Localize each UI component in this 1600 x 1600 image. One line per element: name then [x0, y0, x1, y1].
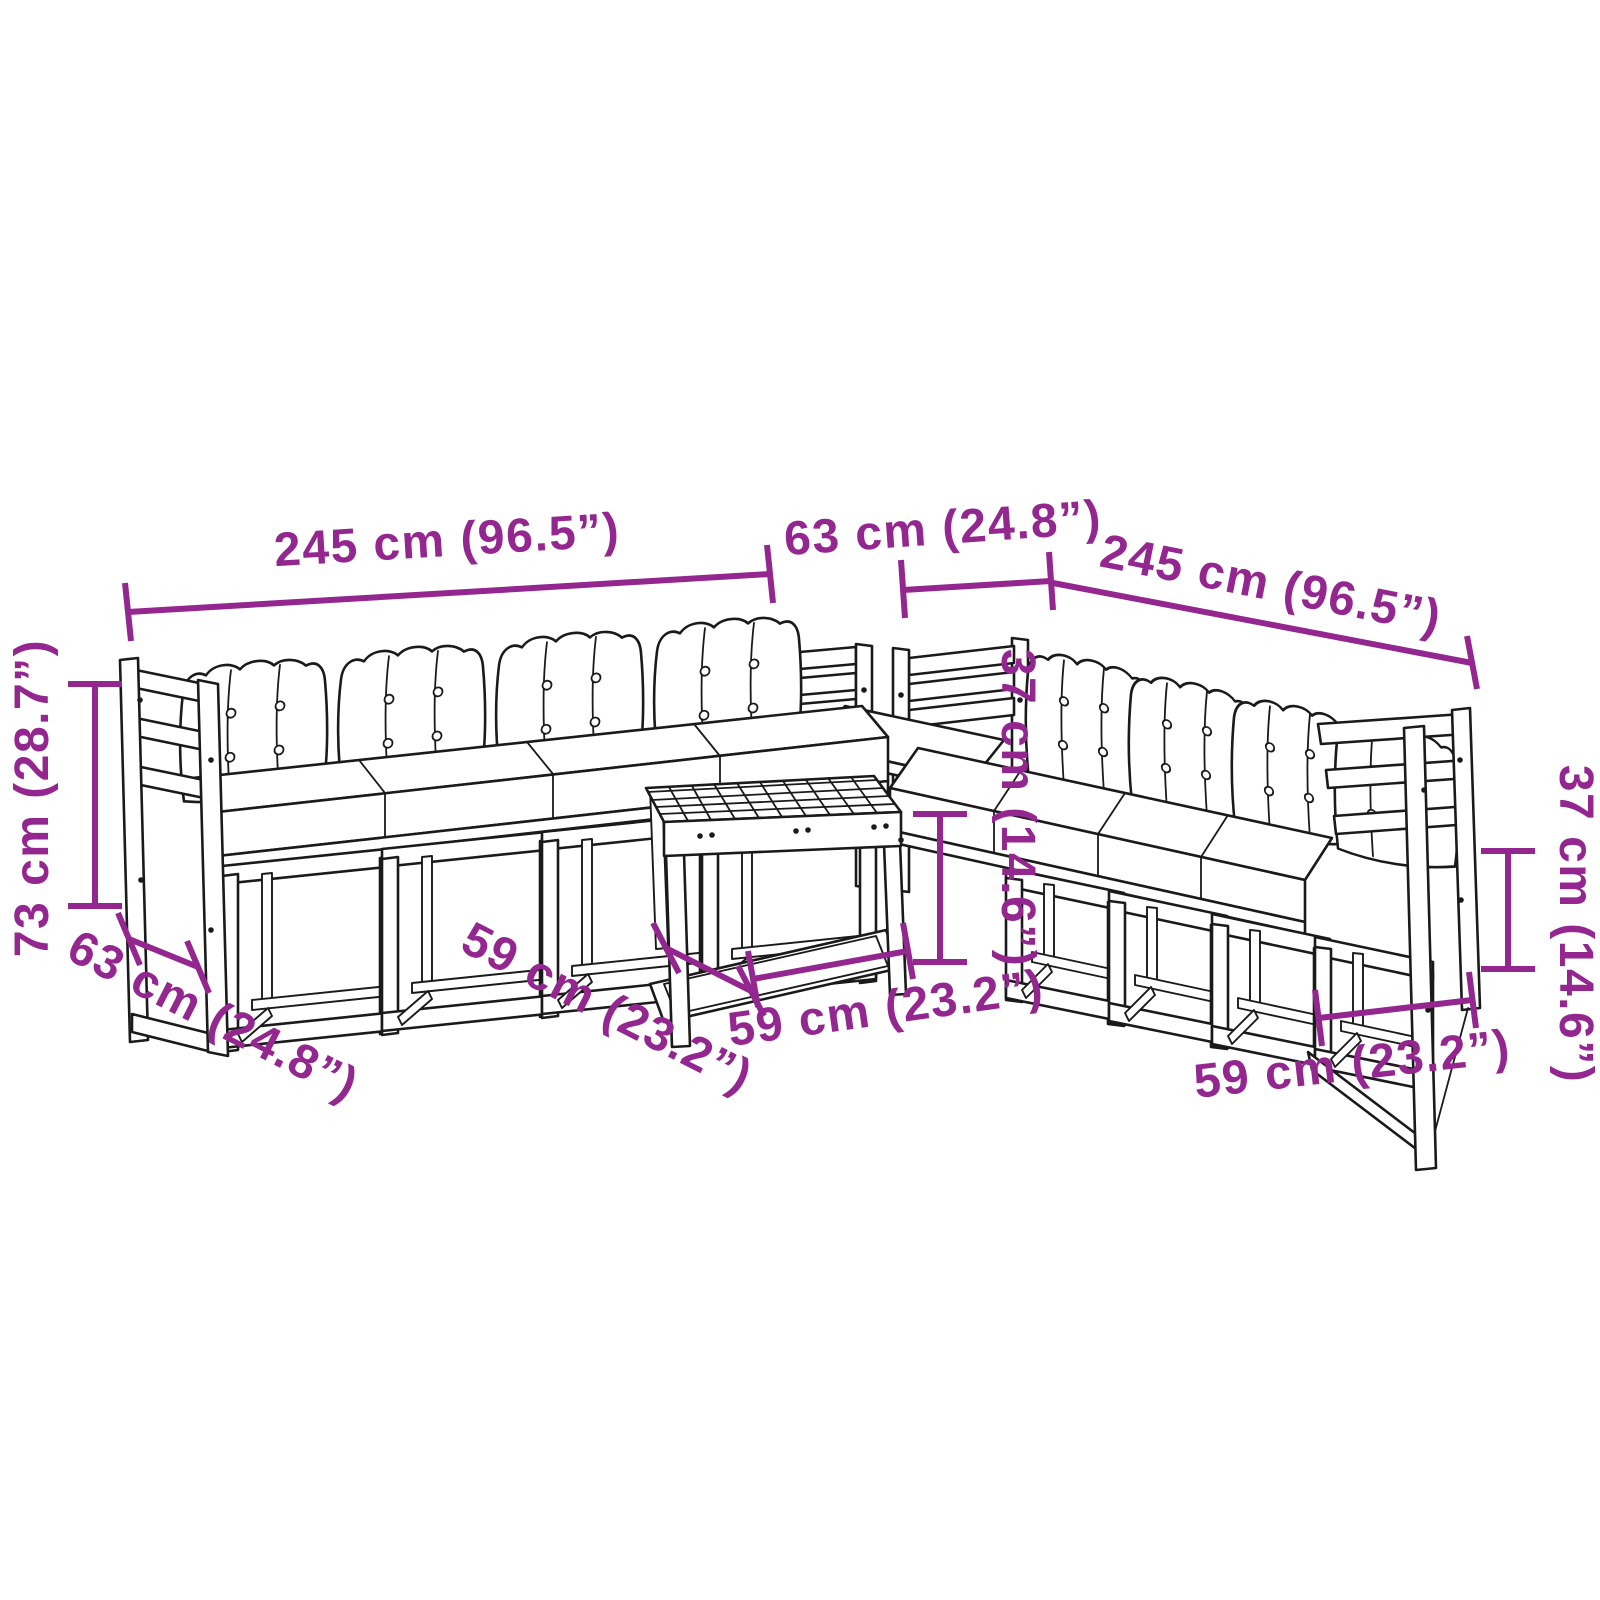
- dim-label-sofa-left-width: 245 cm (96.5”): [273, 504, 622, 577]
- sofa-right-armrest: [1308, 708, 1480, 1170]
- dim-label-table-height: 37 cm (14.6”): [991, 649, 1044, 967]
- dim-overall-height: 73 cm (28.7”): [6, 639, 122, 957]
- dim-label-corner-width: 63 cm (24.8”): [782, 491, 1103, 566]
- dim-label-backrest-height: 37 cm (14.6”): [1549, 765, 1600, 1083]
- dim-corner-width: 63 cm (24.8”): [782, 491, 1103, 618]
- dim-sofa-right-width: 245 cm (96.5”): [1053, 525, 1477, 689]
- dim-sofa-left-width: 245 cm (96.5”): [125, 504, 773, 641]
- dim-label-overall-height: 73 cm (28.7”): [6, 639, 59, 957]
- dimension-diagram: 245 cm (96.5”) 63 cm (24.8”) 245 cm (96.…: [0, 0, 1600, 1600]
